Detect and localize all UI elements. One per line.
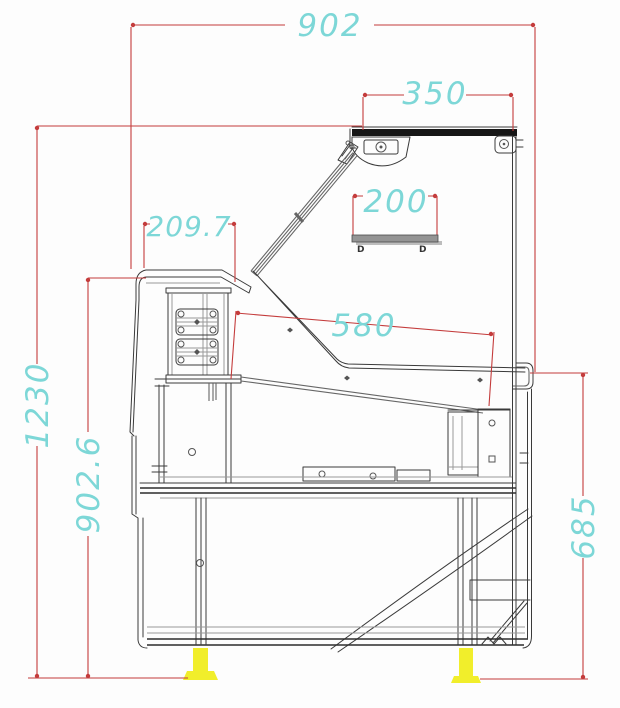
shelf-marker-right: D	[419, 245, 426, 255]
well-left-wall	[152, 379, 169, 483]
pipes	[209, 383, 216, 401]
right-foot	[451, 648, 481, 683]
dim-label-canopy-width: 350	[402, 76, 467, 112]
technical-drawing: 902 350 200 D D 209.7 580 1230 902.6	[0, 0, 620, 708]
mid-divider	[140, 477, 516, 498]
canopy-panel	[352, 129, 517, 136]
screw	[189, 449, 196, 456]
corner-gusset	[482, 601, 527, 644]
worktop	[136, 270, 251, 293]
deck-rails	[303, 467, 430, 481]
dim-label-worktop-depth: 209.7	[146, 210, 231, 243]
base-compartment	[147, 498, 532, 652]
shelf-bar	[352, 235, 438, 242]
interior-columns	[226, 383, 231, 483]
dimension-total-height: 1230	[20, 126, 362, 678]
well-right-structures	[448, 409, 510, 477]
dimension-canopy-width: 350	[363, 76, 513, 131]
dim-label-worktop-height: 902.6	[71, 435, 107, 534]
left-wall	[130, 284, 147, 648]
dim-label-shelf-width: 200	[363, 184, 428, 220]
dimension-shelf-width: 200 D D	[352, 184, 442, 255]
evaporator-box	[166, 288, 231, 375]
dim-label-deck-length: 580	[331, 308, 396, 344]
dim-label-total-width: 902	[297, 8, 362, 44]
evaporator-shelf	[166, 375, 241, 383]
right-wall	[513, 136, 517, 645]
display-deck	[241, 377, 484, 413]
left-foot	[183, 648, 218, 680]
dimension-deck-length: 580	[231, 308, 494, 406]
drawing-canvas: 902 350 200 D D 209.7 580 1230 902.6	[0, 0, 620, 708]
dim-label-front-height: 685	[566, 494, 602, 559]
canopy-right-bracket	[495, 136, 523, 153]
front-glass	[251, 151, 357, 276]
dim-label-total-height: 1230	[20, 362, 56, 449]
dimension-worktop-depth: 209.7	[143, 210, 236, 282]
shelf-marker-left: D	[357, 245, 364, 255]
